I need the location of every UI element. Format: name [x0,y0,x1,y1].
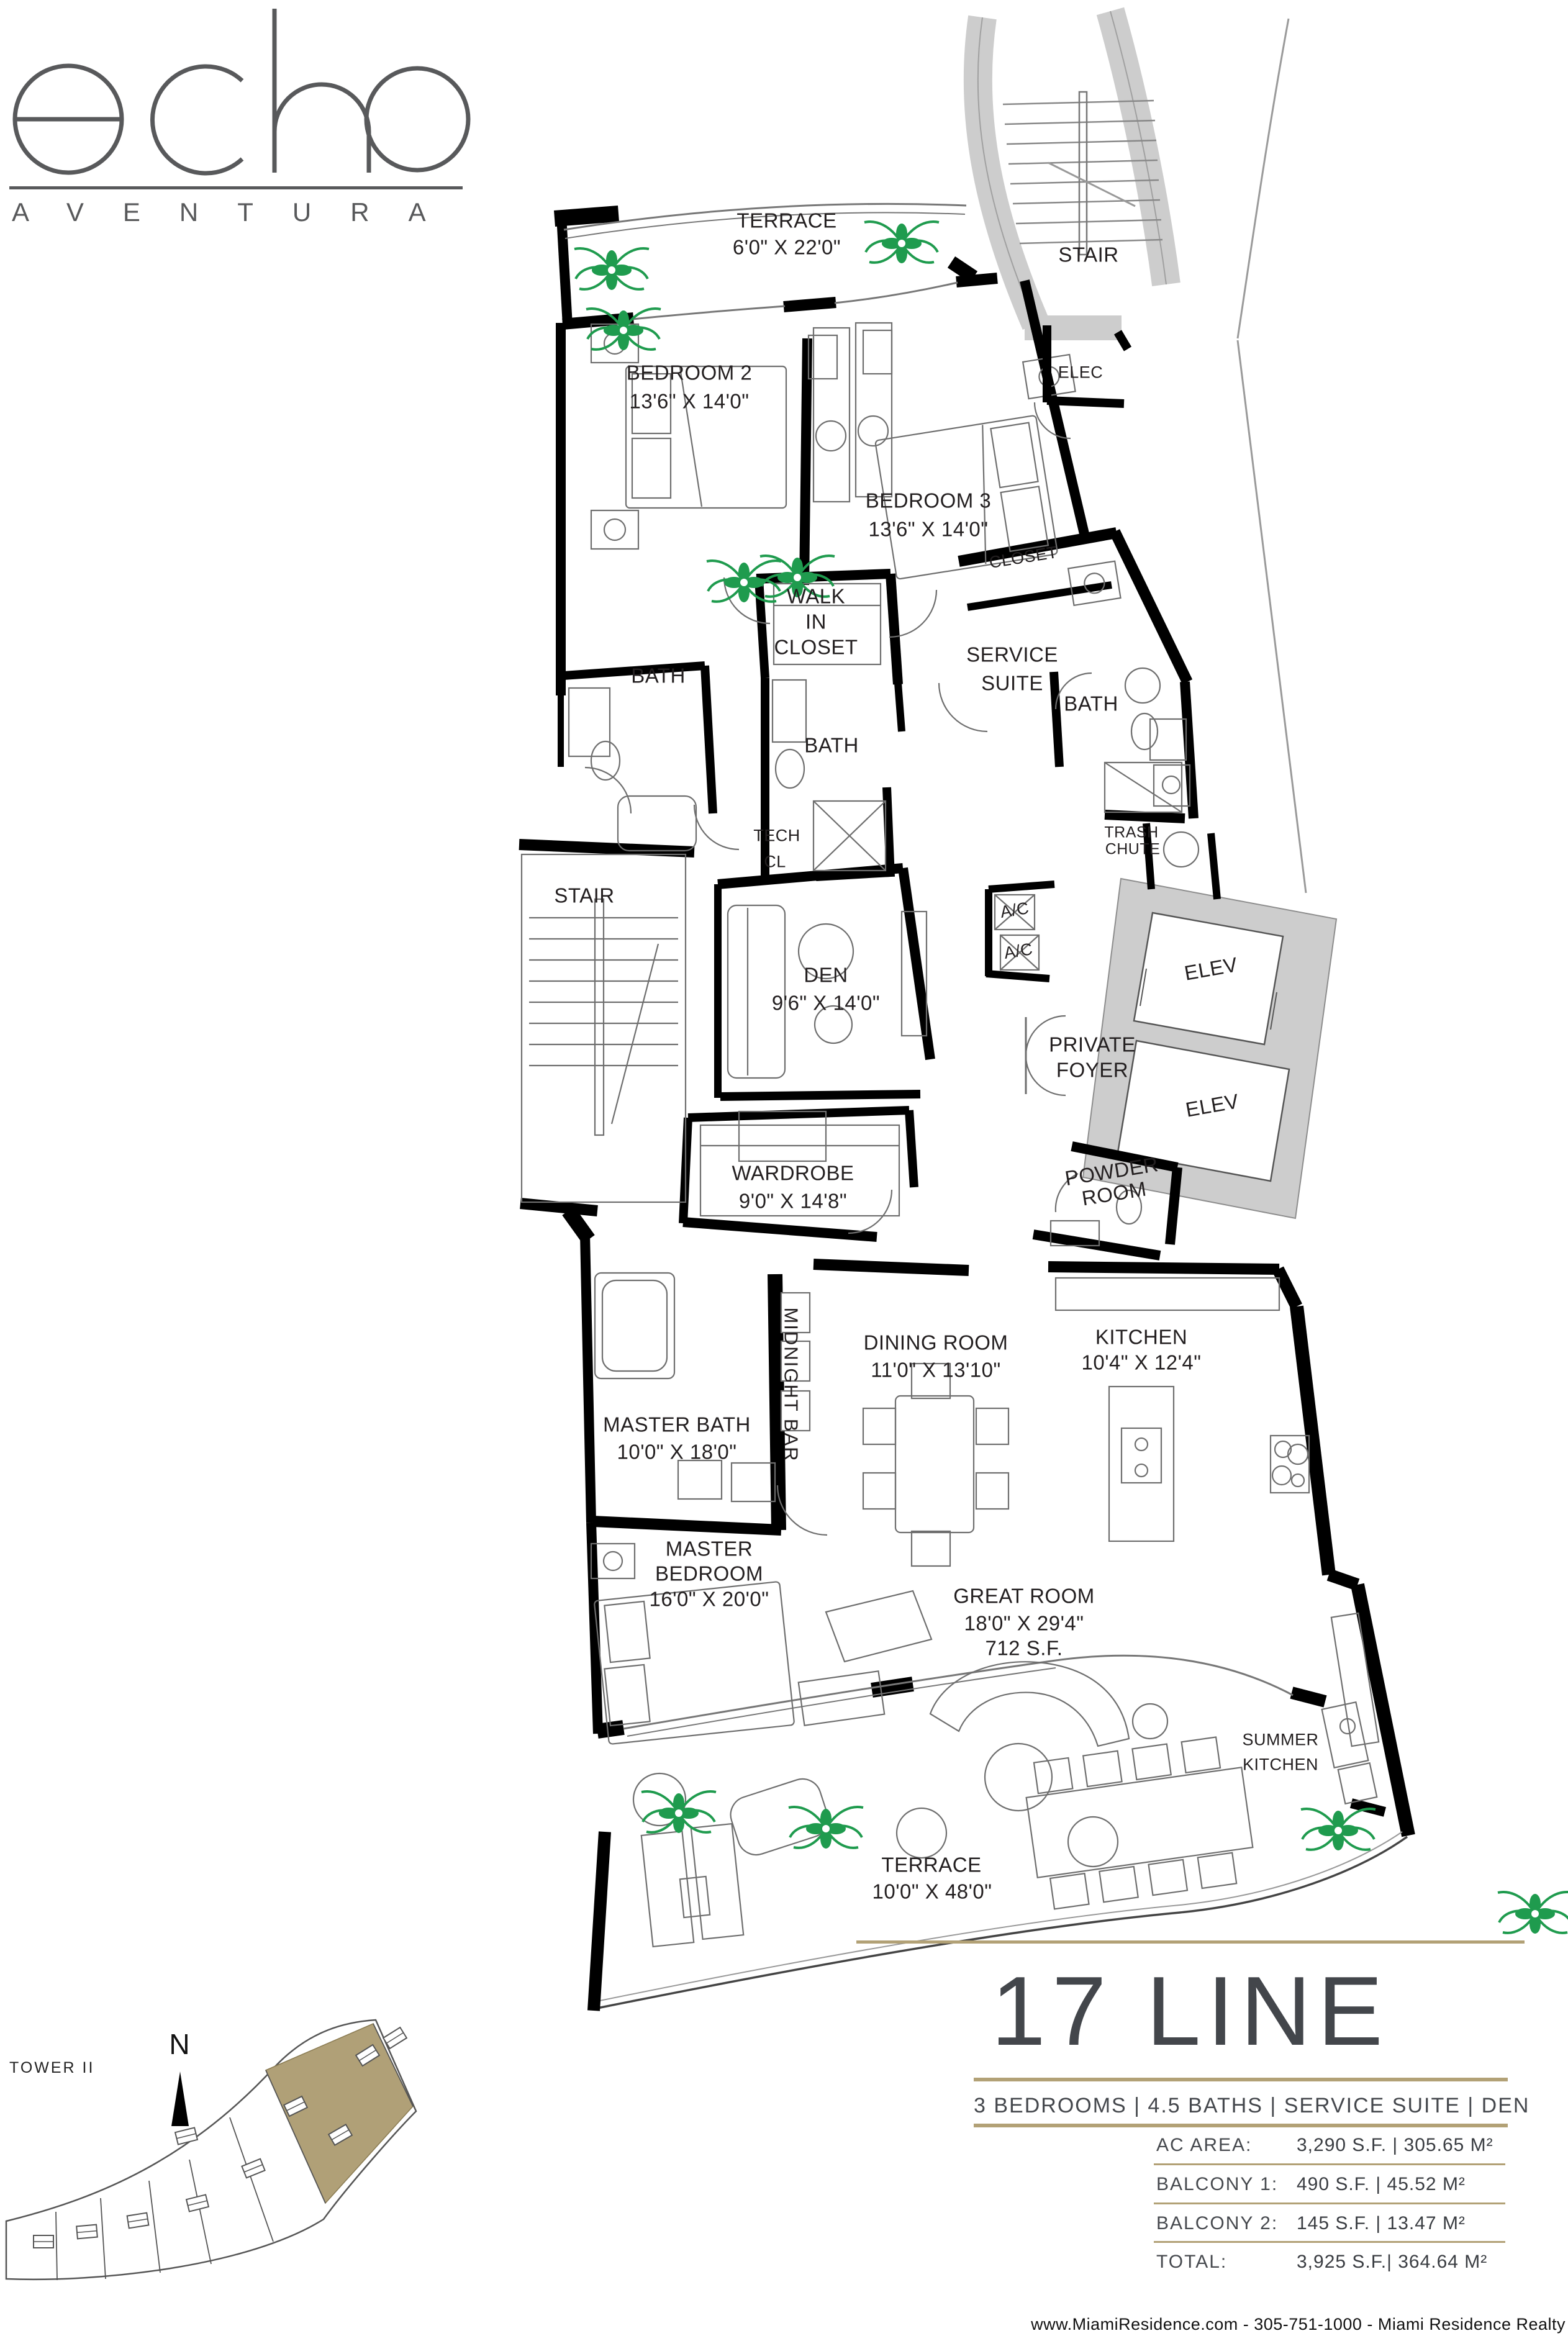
label-stair-unit: STAIR [554,885,614,906]
keyplan-tower-label: TOWER II [9,2059,94,2077]
label-den: DEN [804,965,848,985]
spec-separator [1154,2241,1505,2243]
label-great-room-area: 712 S.F. [985,1638,1063,1659]
label-dining-room: DINING ROOM [864,1333,1008,1353]
label-great-room-1: GREAT ROOM [953,1586,1094,1606]
label-summer-kitchen-2: KITCHEN [1243,1757,1318,1773]
label-private-foyer-1: PRIVATE [1049,1034,1136,1055]
label-bedroom-2-dims: 13'6" X 14'0" [630,391,750,412]
floorplan-sheet: { "logo": { "brand": "echo", "sub": "AVE… [0,0,1568,2336]
label-closet: CLOSET [988,544,1059,571]
label-master-bedroom-2: BEDROOM [655,1564,763,1584]
spec-label: TOTAL: [1156,2252,1297,2273]
label-private-foyer-2: FOYER [1056,1060,1128,1080]
spec-value: 3,925 S.F.| 364.64 M² [1297,2252,1487,2273]
label-walk-in-closet-1: WALK [787,586,845,607]
label-summer-kitchen-1: SUMMER [1243,1732,1319,1749]
label-bath-mid: BATH [804,735,859,756]
label-terrace-top-dims: 6'0" X 22'0" [733,237,841,258]
label-walk-in-closet-2: IN [805,612,827,632]
spec-row-balcony-2: BALCONY 2: 145 S.F. | 13.47 M² [1156,2213,1508,2234]
spec-value: 490 S.F. | 45.52 M² [1297,2174,1466,2195]
label-walk-in-closet-3: CLOSET [774,637,858,658]
label-bedroom-2: BEDROOM 2 [627,363,753,383]
unit-features: 3 BEDROOMS | 4.5 BATHS | SERVICE SUITE |… [974,2094,1529,2118]
label-bath-2: BATH [631,666,686,686]
unit-title: 17 LINE [991,1962,1528,2060]
label-kitchen-dims: 10'4" X 12'4" [1082,1352,1202,1373]
label-elev-2: ELEV [1184,1090,1241,1120]
label-wardrobe-dims: 9'0" X 14'8" [739,1191,847,1211]
label-service-suite-1: SERVICE [966,645,1058,665]
spec-row-balcony-1: BALCONY 1: 490 S.F. | 45.52 M² [1156,2174,1508,2195]
label-bedroom-3: BEDROOM 3 [866,491,992,511]
label-tech-cl-2: CL [764,854,786,871]
label-bath-service: BATH [1064,694,1118,714]
label-dining-room-dims: 11'0" X 13'10" [871,1360,1000,1380]
label-master-bedroom-1: MASTER [666,1539,753,1559]
spec-label: AC AREA: [1156,2135,1297,2156]
label-master-bedroom-dims: 16'0" X 20'0" [650,1589,769,1609]
label-ac-2: A/C [1003,941,1034,962]
label-kitchen: KITCHEN [1095,1327,1187,1347]
label-wardrobe: WARDROBE [732,1163,854,1184]
spec-row-total: TOTAL: 3,925 S.F.| 364.64 M² [1156,2252,1508,2273]
label-elec: ELEC [1058,364,1103,381]
label-elev-1: ELEV [1183,954,1239,984]
label-terrace-bottom-dims: 10'0" X 48'0" [872,1881,992,1902]
label-tech-cl-1: TECH [753,828,800,844]
spec-label: BALCONY 1: [1156,2174,1297,2195]
label-master-bath: MASTER BATH [603,1415,751,1435]
label-terrace-bottom: TERRACE [881,1855,981,1875]
label-trash-chute-2: CHUTE [1105,842,1161,858]
spec-value: 3,290 S.F. | 305.65 M² [1297,2135,1493,2156]
gold-rule-title [974,2078,1508,2081]
gold-rule-features [974,2124,1508,2127]
spec-separator [1154,2163,1505,2165]
label-great-room-dims: 18'0" X 29'4" [964,1613,1084,1634]
label-master-bath-dims: 10'0" X 18'0" [617,1442,737,1462]
label-stair-top: STAIR [1058,245,1118,265]
keyplan-north-label: N [169,2027,189,2061]
label-ac-1: A/C [999,900,1030,921]
label-service-suite-2: SUITE [981,673,1043,694]
label-bedroom-3-dims: 13'6" X 14'0" [869,519,989,540]
spec-separator [1154,2202,1505,2204]
spec-label: BALCONY 2: [1156,2213,1297,2234]
spec-row-ac-area: AC AREA: 3,290 S.F. | 305.65 M² [1156,2135,1508,2156]
footer-contact: www.MiamiResidence.com - 305-751-1000 - … [1031,2315,1566,2334]
gold-rule-under-plan [856,1940,1525,1944]
label-terrace-top: TERRACE [736,211,836,231]
label-midnight-bar: MIDNIGHT BAR [782,1307,801,1462]
label-trash-chute-1: TRASH [1104,825,1158,841]
label-den-dims: 9'6" X 14'0" [772,993,880,1013]
spec-value: 145 S.F. | 13.47 M² [1297,2213,1466,2234]
